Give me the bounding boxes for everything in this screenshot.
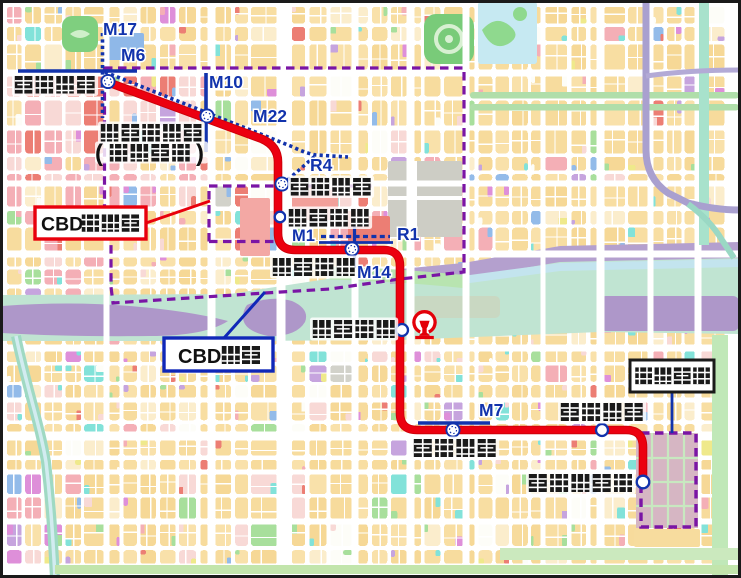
- svg-text:CBD: CBD: [178, 346, 221, 368]
- svg-text:): ): [196, 140, 204, 167]
- svg-text:M22: M22: [253, 106, 287, 126]
- svg-text:M10: M10: [209, 72, 243, 92]
- svg-text:M6: M6: [121, 45, 146, 65]
- svg-text:R4: R4: [310, 155, 333, 175]
- svg-text:R1: R1: [397, 224, 420, 244]
- svg-text:M1: M1: [292, 227, 315, 245]
- svg-text:M14: M14: [357, 262, 391, 282]
- svg-text:CBD: CBD: [41, 214, 83, 236]
- svg-text:M17: M17: [103, 19, 137, 39]
- svg-text:M7: M7: [479, 400, 503, 420]
- svg-text:(: (: [95, 140, 103, 167]
